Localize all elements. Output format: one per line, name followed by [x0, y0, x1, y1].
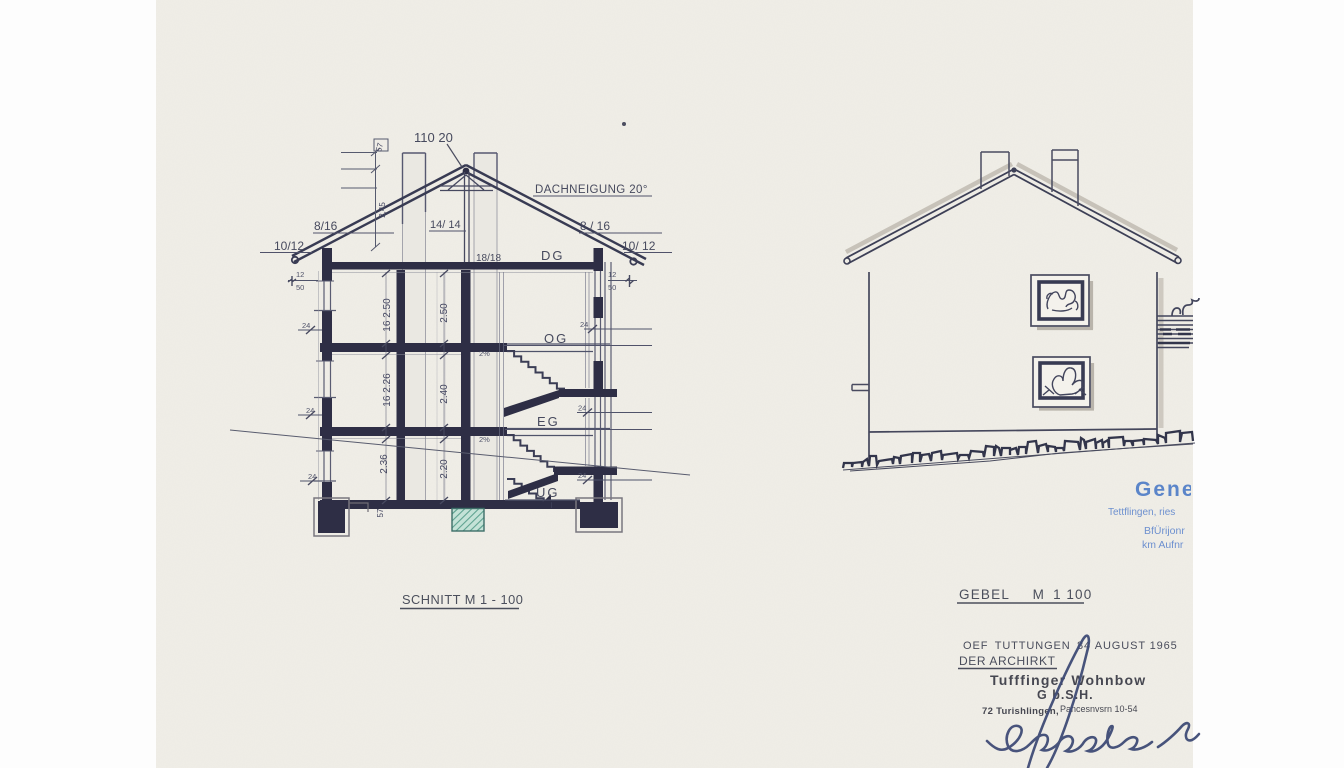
svg-text:24: 24	[302, 321, 310, 330]
svg-text:2.40: 2.40	[439, 384, 450, 404]
svg-text:16 2.26: 16 2.26	[382, 373, 393, 407]
svg-text:OG: OG	[544, 331, 568, 346]
svg-text:2,45: 2,45	[378, 202, 387, 218]
svg-text:12: 12	[296, 270, 304, 279]
svg-text:24: 24	[578, 471, 586, 480]
svg-text:Gene: Gene	[1135, 478, 1196, 501]
svg-text:8 / 16: 8 / 16	[580, 219, 610, 233]
svg-text:2%: 2%	[479, 349, 490, 358]
svg-text:57: 57	[376, 508, 385, 517]
svg-text:km Aufnr: km Aufnr	[1142, 539, 1184, 551]
svg-text:24: 24	[308, 472, 316, 481]
svg-text:G b.S.H.: G b.S.H.	[1037, 688, 1094, 702]
svg-text:DG: DG	[541, 248, 565, 263]
svg-text:Tettflingen, ries: Tettflingen, ries	[1108, 507, 1175, 518]
svg-text:18/18: 18/18	[476, 253, 501, 264]
svg-text:UG: UG	[536, 485, 560, 500]
svg-text:10/ 12: 10/ 12	[622, 239, 656, 253]
svg-text:2.20: 2.20	[439, 459, 450, 479]
svg-text:24: 24	[306, 406, 314, 415]
svg-text:10/12: 10/12	[274, 239, 304, 253]
svg-text:BfÜrijonr: BfÜrijonr	[1144, 525, 1185, 537]
svg-text:12: 12	[608, 270, 616, 279]
svg-text:8/16: 8/16	[314, 219, 338, 233]
svg-text:24: 24	[578, 404, 586, 413]
svg-text:2%: 2%	[479, 435, 490, 444]
svg-text:OEF TUTTUNGEN 84 AUGUST 1965: OEF TUTTUNGEN 84 AUGUST 1965	[963, 640, 1178, 652]
svg-text:Tufffinger Wohnbow: Tufffinger Wohnbow	[990, 672, 1146, 688]
svg-text:DACHNEIGUNG 20°: DACHNEIGUNG 20°	[535, 184, 648, 196]
svg-text:DER ARCHIRKT: DER ARCHIRKT	[959, 654, 1056, 668]
svg-text:24: 24	[580, 320, 588, 329]
svg-text:EG: EG	[537, 414, 560, 429]
svg-text:50: 50	[608, 283, 616, 292]
svg-text:50: 50	[296, 283, 304, 292]
svg-text:14/ 14: 14/ 14	[430, 219, 461, 231]
svg-text:GEBEL M 1 100: GEBEL M 1 100	[959, 587, 1092, 602]
svg-text:SCHNITT M 1 - 100: SCHNITT M 1 - 100	[402, 592, 523, 607]
svg-text:2.36: 2.36	[379, 454, 390, 474]
svg-text:16 2.50: 16 2.50	[382, 298, 393, 332]
svg-text:2.50: 2.50	[439, 303, 450, 323]
svg-text:110 20: 110 20	[414, 130, 453, 145]
